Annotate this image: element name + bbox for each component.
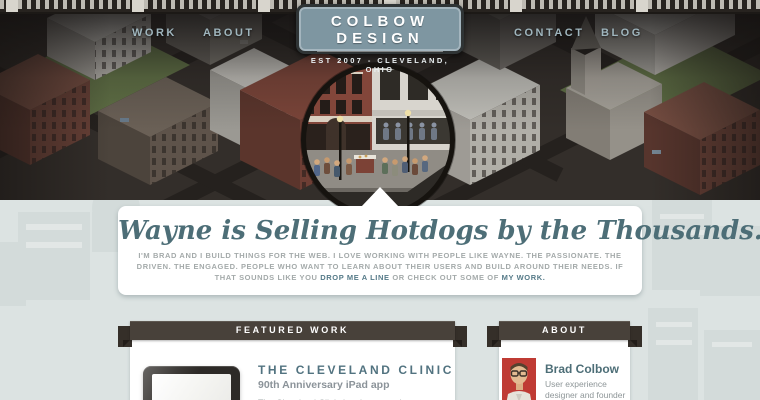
nav-item-blog[interactable]: BLOG (601, 27, 643, 39)
project-subtitle: 90th Anniversary iPad app (258, 379, 448, 391)
site-subtitle: EST 2007 - CLEVELAND, OHIO (299, 56, 461, 74)
featured-work-ribbon-label: FEATURED WORK (130, 321, 455, 340)
nav-item-contact[interactable]: CONTACT (514, 27, 584, 39)
about-bio-text: User experience designer and founder of … (545, 379, 625, 400)
ribbon-fold-right (455, 340, 462, 347)
my-work-link[interactable]: MY WORK. (502, 273, 546, 282)
site-title: COLBOW DESIGN (299, 13, 461, 47)
ribbon-fold-left (492, 340, 499, 347)
ipad-image[interactable] (143, 366, 240, 400)
ribbon-fold-left (123, 340, 130, 347)
colbow-design-homepage: WORK ABOUT CONTACT BLOG COLBOW DESIGN ES… (0, 0, 760, 400)
ribbon-fold-right (630, 340, 637, 347)
about-ribbon: ABOUT (487, 321, 642, 349)
hero-headline: Wayne is Selling Hotdogs by the Thousand… (118, 216, 642, 246)
project-title[interactable]: THE CLEVELAND CLINIC (258, 363, 448, 377)
ipad-gloss (143, 366, 240, 400)
featured-work-ribbon: FEATURED WORK (118, 321, 467, 349)
logo-divider (317, 51, 443, 52)
logo-badge[interactable]: COLBOW DESIGN EST 2007 - CLEVELAND, OHIO (296, 4, 464, 54)
nav-item-about[interactable]: ABOUT (203, 27, 255, 39)
featured-work-panel: THE CLEVELAND CLINIC 90th Anniversary iP… (130, 340, 455, 400)
hero-card: Wayne is Selling Hotdogs by the Thousand… (118, 206, 642, 295)
drop-me-a-line-link[interactable]: DROP ME A LINE (320, 273, 389, 282)
speech-bubble-pointer (361, 187, 399, 207)
about-panel: Brad Colbow User experience designer and… (499, 340, 630, 400)
hero-intro-text: I'M BRAD AND I BUILD THINGS FOR THE WEB.… (129, 250, 631, 283)
brad-colbow-photo (502, 358, 536, 400)
hero-intro-part2: OR CHECK OUT SOME OF (392, 273, 499, 282)
about-ribbon-label: ABOUT (499, 321, 630, 340)
nav-item-work[interactable]: WORK (132, 27, 177, 39)
about-name: Brad Colbow (545, 362, 627, 376)
